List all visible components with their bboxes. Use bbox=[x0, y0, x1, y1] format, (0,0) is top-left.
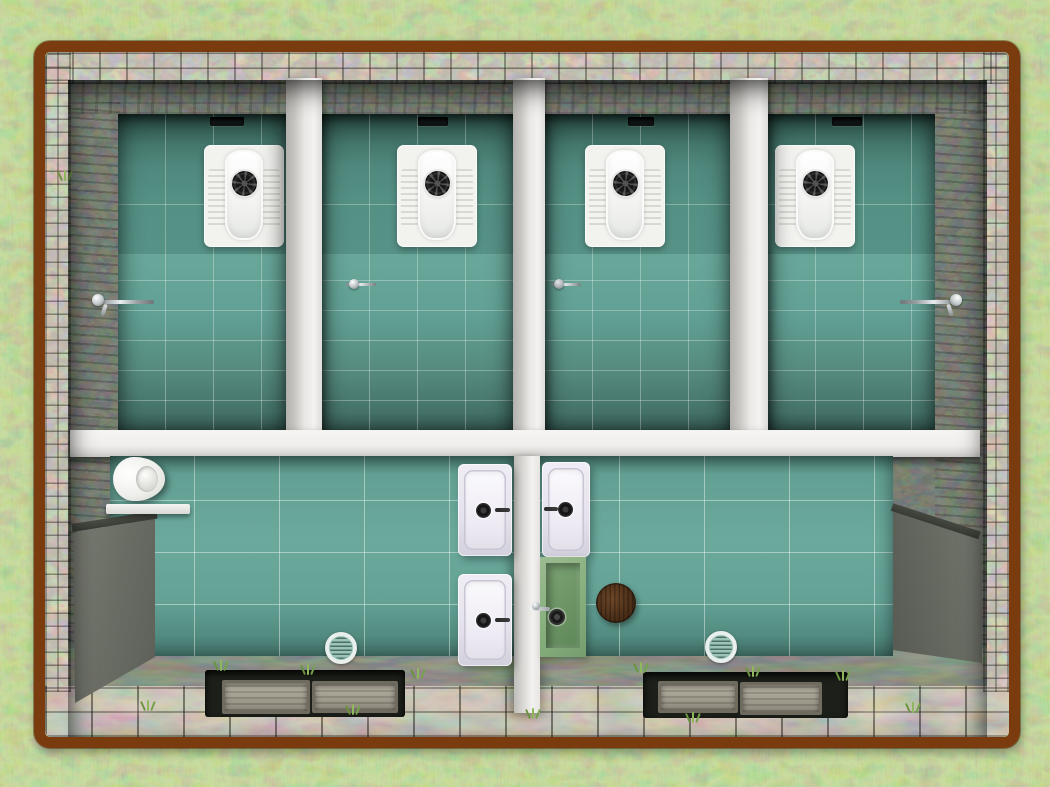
basin-drain-icon bbox=[476, 613, 491, 628]
grass-tuft bbox=[140, 700, 156, 711]
grass-tuft bbox=[213, 660, 229, 671]
grass-tuft bbox=[835, 670, 851, 681]
grass-tuft bbox=[410, 668, 426, 679]
grass-tuft bbox=[685, 712, 701, 723]
grass-tuft bbox=[57, 170, 73, 181]
grass-tuft bbox=[633, 662, 649, 673]
basin-spout-icon bbox=[544, 507, 558, 511]
toilet-stall-4 bbox=[768, 114, 935, 430]
utility-tap-icon bbox=[530, 602, 558, 616]
tap-hose bbox=[100, 304, 108, 317]
stall-4-tap-assembly-icon bbox=[896, 290, 962, 318]
privacy-screen-left-face bbox=[70, 515, 158, 707]
entry-step-pit-right bbox=[643, 672, 848, 718]
entry-step-pit-left bbox=[205, 670, 405, 717]
partition-wall-2 bbox=[513, 78, 545, 430]
stall-3-shading bbox=[545, 114, 730, 430]
toilet-stall-3 bbox=[545, 114, 730, 430]
grass-tuft bbox=[525, 708, 541, 719]
shelf-ledge bbox=[106, 504, 190, 514]
privacy-screen-right bbox=[890, 503, 984, 665]
stall-2-shading bbox=[322, 114, 513, 430]
entry-step bbox=[222, 680, 310, 714]
central-dividing-wall bbox=[514, 456, 540, 713]
partition-wall-3 bbox=[730, 78, 768, 430]
wash-basin-3 bbox=[542, 462, 590, 557]
basin-spout-icon bbox=[495, 618, 510, 622]
grass-tuft bbox=[905, 702, 921, 713]
stall-4-shading bbox=[768, 114, 935, 430]
stall-1-tap-assembly-icon bbox=[92, 290, 158, 318]
toilet-stall-1 bbox=[118, 114, 286, 430]
entry-step bbox=[658, 681, 738, 713]
tap-hose bbox=[946, 304, 954, 317]
toilet-stall-2 bbox=[322, 114, 513, 430]
grass-tuft bbox=[345, 704, 361, 715]
toilet-block-plan-scene bbox=[0, 0, 1050, 787]
building-interior bbox=[45, 52, 1009, 737]
basin-spout-icon bbox=[495, 508, 510, 512]
partition-wall-1 bbox=[286, 78, 322, 430]
basin-drain-icon bbox=[476, 503, 491, 518]
wooden-stool bbox=[596, 583, 636, 623]
stall-1-shading bbox=[118, 114, 286, 430]
grass-tuft bbox=[745, 666, 761, 677]
privacy-screen-left bbox=[70, 515, 158, 707]
entry-step bbox=[740, 682, 822, 715]
floor-drain-right-icon bbox=[705, 631, 737, 663]
wash-basin-2 bbox=[458, 574, 512, 666]
grass-tuft bbox=[300, 664, 316, 675]
floor-drain-left-icon bbox=[325, 632, 357, 664]
horizontal-dividing-wall bbox=[70, 430, 980, 457]
wash-basin-1 bbox=[458, 464, 512, 556]
basin-drain-icon bbox=[558, 502, 573, 517]
